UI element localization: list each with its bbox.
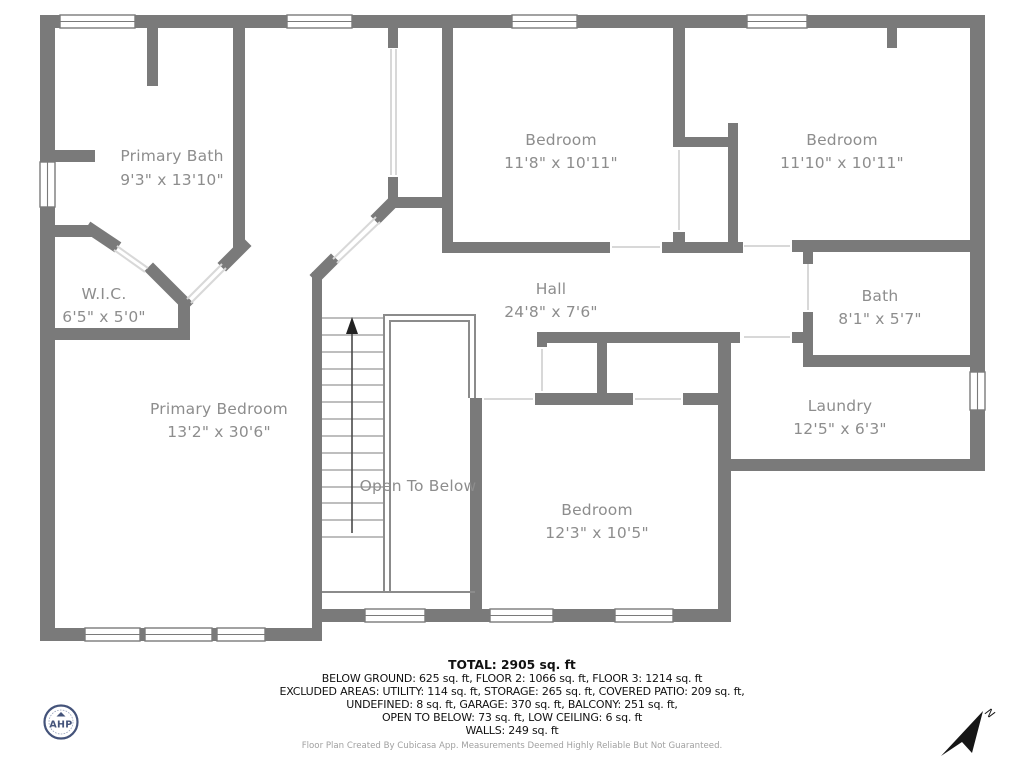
room-name: W.I.C. bbox=[82, 285, 127, 303]
room-dims: 12'3" x 10'5" bbox=[545, 524, 649, 542]
open-to-below-label: Open To Below bbox=[360, 477, 477, 495]
room-dims: 9'3" x 13'10" bbox=[120, 171, 224, 189]
disclaimer-text: Floor Plan Created By Cubicasa App. Meas… bbox=[302, 741, 723, 751]
room-dims: 11'8" x 10'11" bbox=[504, 154, 618, 172]
window bbox=[365, 609, 425, 622]
room-label-bedroom-bottom: Bedroom 12'3" x 10'5" bbox=[545, 501, 649, 542]
room-label-laundry: Laundry 12'5" x 6'3" bbox=[793, 397, 887, 438]
room-label-primary-bedroom: Primary Bedroom 13'2" x 30'6" bbox=[150, 400, 288, 441]
window bbox=[512, 15, 577, 28]
window bbox=[40, 162, 55, 207]
room-name: Bedroom bbox=[561, 501, 633, 519]
window bbox=[490, 609, 553, 622]
room-label-bedroom-top-middle: Bedroom 11'8" x 10'11" bbox=[504, 131, 618, 172]
room-dims: 11'10" x 10'11" bbox=[780, 154, 904, 172]
window bbox=[145, 628, 212, 641]
room-dims: 12'5" x 6'3" bbox=[793, 420, 887, 438]
walls-layer bbox=[40, 15, 985, 641]
window bbox=[217, 628, 265, 641]
room-label-bedroom-top-right: Bedroom 11'10" x 10'11" bbox=[780, 131, 904, 172]
window bbox=[85, 628, 140, 641]
room-dims: 24'8" x 7'6" bbox=[504, 303, 598, 321]
window bbox=[287, 15, 352, 28]
room-name: Bedroom bbox=[806, 131, 878, 149]
floor-plan-canvas: Primary Bath 9'3" x 13'10" W.I.C. 6'5" x… bbox=[0, 0, 1024, 768]
north-arrow-icon: N bbox=[941, 706, 997, 756]
excluded-areas-text-2: UNDEFINED: 8 sq. ft, GARAGE: 370 sq. ft,… bbox=[346, 698, 677, 711]
window bbox=[615, 609, 673, 622]
excluded-areas-text-3: OPEN TO BELOW: 73 sq. ft, LOW CEILING: 6… bbox=[382, 711, 643, 724]
room-label-bath: Bath 8'1" x 5'7" bbox=[838, 287, 921, 328]
logo-text: AHP bbox=[49, 720, 72, 731]
room-name: Primary Bedroom bbox=[150, 400, 288, 418]
excluded-areas-text: EXCLUDED AREAS: UTILITY: 114 sq. ft, STO… bbox=[279, 685, 744, 698]
room-label-wic: W.I.C. 6'5" x 5'0" bbox=[62, 285, 145, 326]
doors-layer bbox=[114, 49, 808, 399]
walls-area-text: WALLS: 249 sq. ft bbox=[465, 724, 559, 737]
window bbox=[970, 372, 985, 410]
stairs-up-arrow-icon bbox=[346, 317, 358, 533]
total-area-text: TOTAL: 2905 sq. ft bbox=[448, 658, 576, 672]
compass-north-label: N bbox=[982, 706, 997, 721]
room-label-primary-bath: Primary Bath 9'3" x 13'10" bbox=[120, 147, 224, 189]
room-dims: 6'5" x 5'0" bbox=[62, 308, 145, 326]
staircase bbox=[322, 315, 475, 593]
room-name: Hall bbox=[536, 280, 567, 298]
room-label-hall: Hall 24'8" x 7'6" bbox=[504, 280, 598, 321]
room-dims: 8'1" x 5'7" bbox=[838, 310, 921, 328]
room-dims: 13'2" x 30'6" bbox=[167, 423, 271, 441]
window bbox=[747, 15, 807, 28]
ahp-logo: AHP bbox=[45, 706, 78, 739]
area-summary: TOTAL: 2905 sq. ft BELOW GROUND: 625 sq.… bbox=[279, 658, 744, 751]
floors-area-text: BELOW GROUND: 625 sq. ft, FLOOR 2: 1066 … bbox=[322, 672, 703, 685]
room-name: Laundry bbox=[808, 397, 873, 415]
room-name: Bath bbox=[862, 287, 899, 305]
stairwell-railing bbox=[322, 315, 475, 593]
window bbox=[60, 15, 135, 28]
room-name: Bedroom bbox=[525, 131, 597, 149]
room-name: Primary Bath bbox=[120, 147, 223, 165]
floor-plan-page: Primary Bath 9'3" x 13'10" W.I.C. 6'5" x… bbox=[0, 0, 1024, 768]
